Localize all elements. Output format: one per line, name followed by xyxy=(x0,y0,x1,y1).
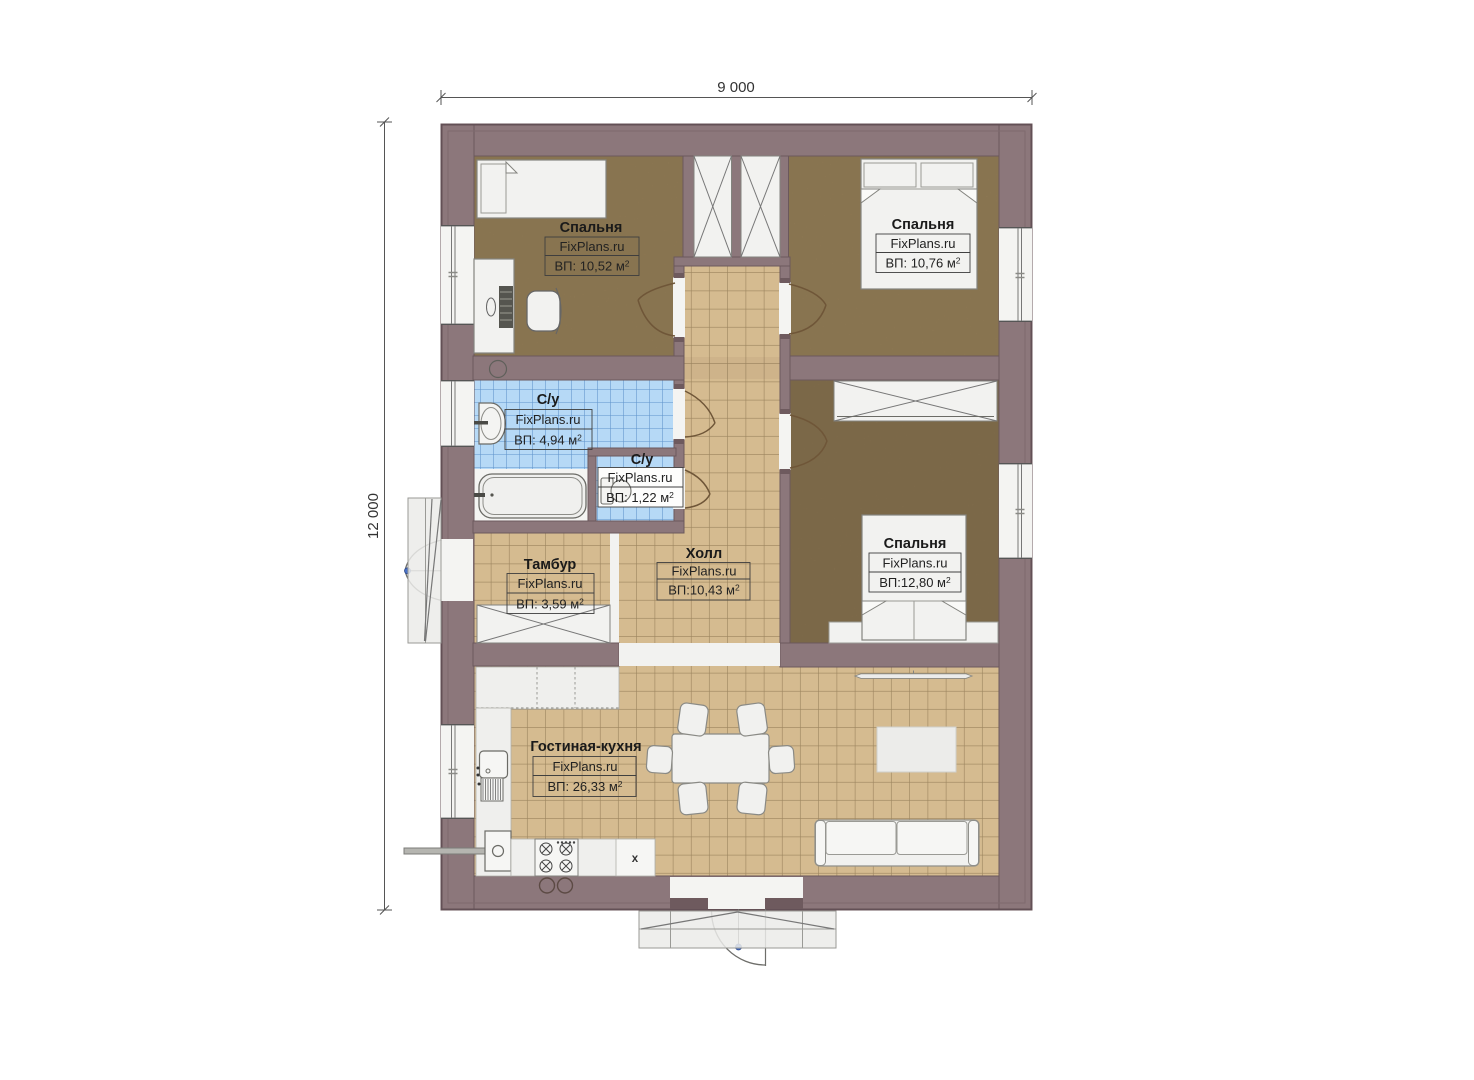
svg-text:FixPlans.ru: FixPlans.ru xyxy=(882,556,947,571)
svg-text:Спальня: Спальня xyxy=(884,536,947,552)
svg-text:ВП: 26,33 м2: ВП: 26,33 м2 xyxy=(547,779,622,794)
svg-text:ВП: 10,76 м2: ВП: 10,76 м2 xyxy=(885,256,960,271)
svg-text:Спальня: Спальня xyxy=(560,220,623,236)
svg-text:x: x xyxy=(632,853,639,865)
svg-text:12 000: 12 000 xyxy=(365,493,382,539)
svg-text:Гостиная-кухня: Гостиная-кухня xyxy=(530,739,641,755)
svg-text:FixPlans.ru: FixPlans.ru xyxy=(552,759,617,774)
svg-text:ВП: 10,52 м2: ВП: 10,52 м2 xyxy=(554,259,629,274)
svg-text:FixPlans.ru: FixPlans.ru xyxy=(607,470,672,485)
svg-text:ВП: 3,59 м2: ВП: 3,59 м2 xyxy=(516,597,584,612)
svg-text:FixPlans.ru: FixPlans.ru xyxy=(890,236,955,251)
svg-text:С/у: С/у xyxy=(537,392,560,408)
svg-text:ВП: 4,94 м2: ВП: 4,94 м2 xyxy=(514,433,582,448)
svg-text:ВП: 1,22 м2: ВП: 1,22 м2 xyxy=(606,490,674,505)
svg-text:ВП:12,80 м2: ВП:12,80 м2 xyxy=(879,575,951,590)
svg-text:Тамбур: Тамбур xyxy=(524,557,577,573)
svg-text:FixPlans.ru: FixPlans.ru xyxy=(559,239,624,254)
svg-text:9 000: 9 000 xyxy=(717,79,755,96)
svg-text:Спальня: Спальня xyxy=(892,217,955,233)
svg-text:ВП:10,43 м2: ВП:10,43 м2 xyxy=(668,583,740,598)
svg-text:FixPlans.ru: FixPlans.ru xyxy=(517,576,582,591)
svg-text:Холл: Холл xyxy=(686,546,722,562)
svg-text:С/у: С/у xyxy=(631,452,654,468)
svg-text:FixPlans.ru: FixPlans.ru xyxy=(671,564,736,579)
svg-text:FixPlans.ru: FixPlans.ru xyxy=(515,412,580,427)
